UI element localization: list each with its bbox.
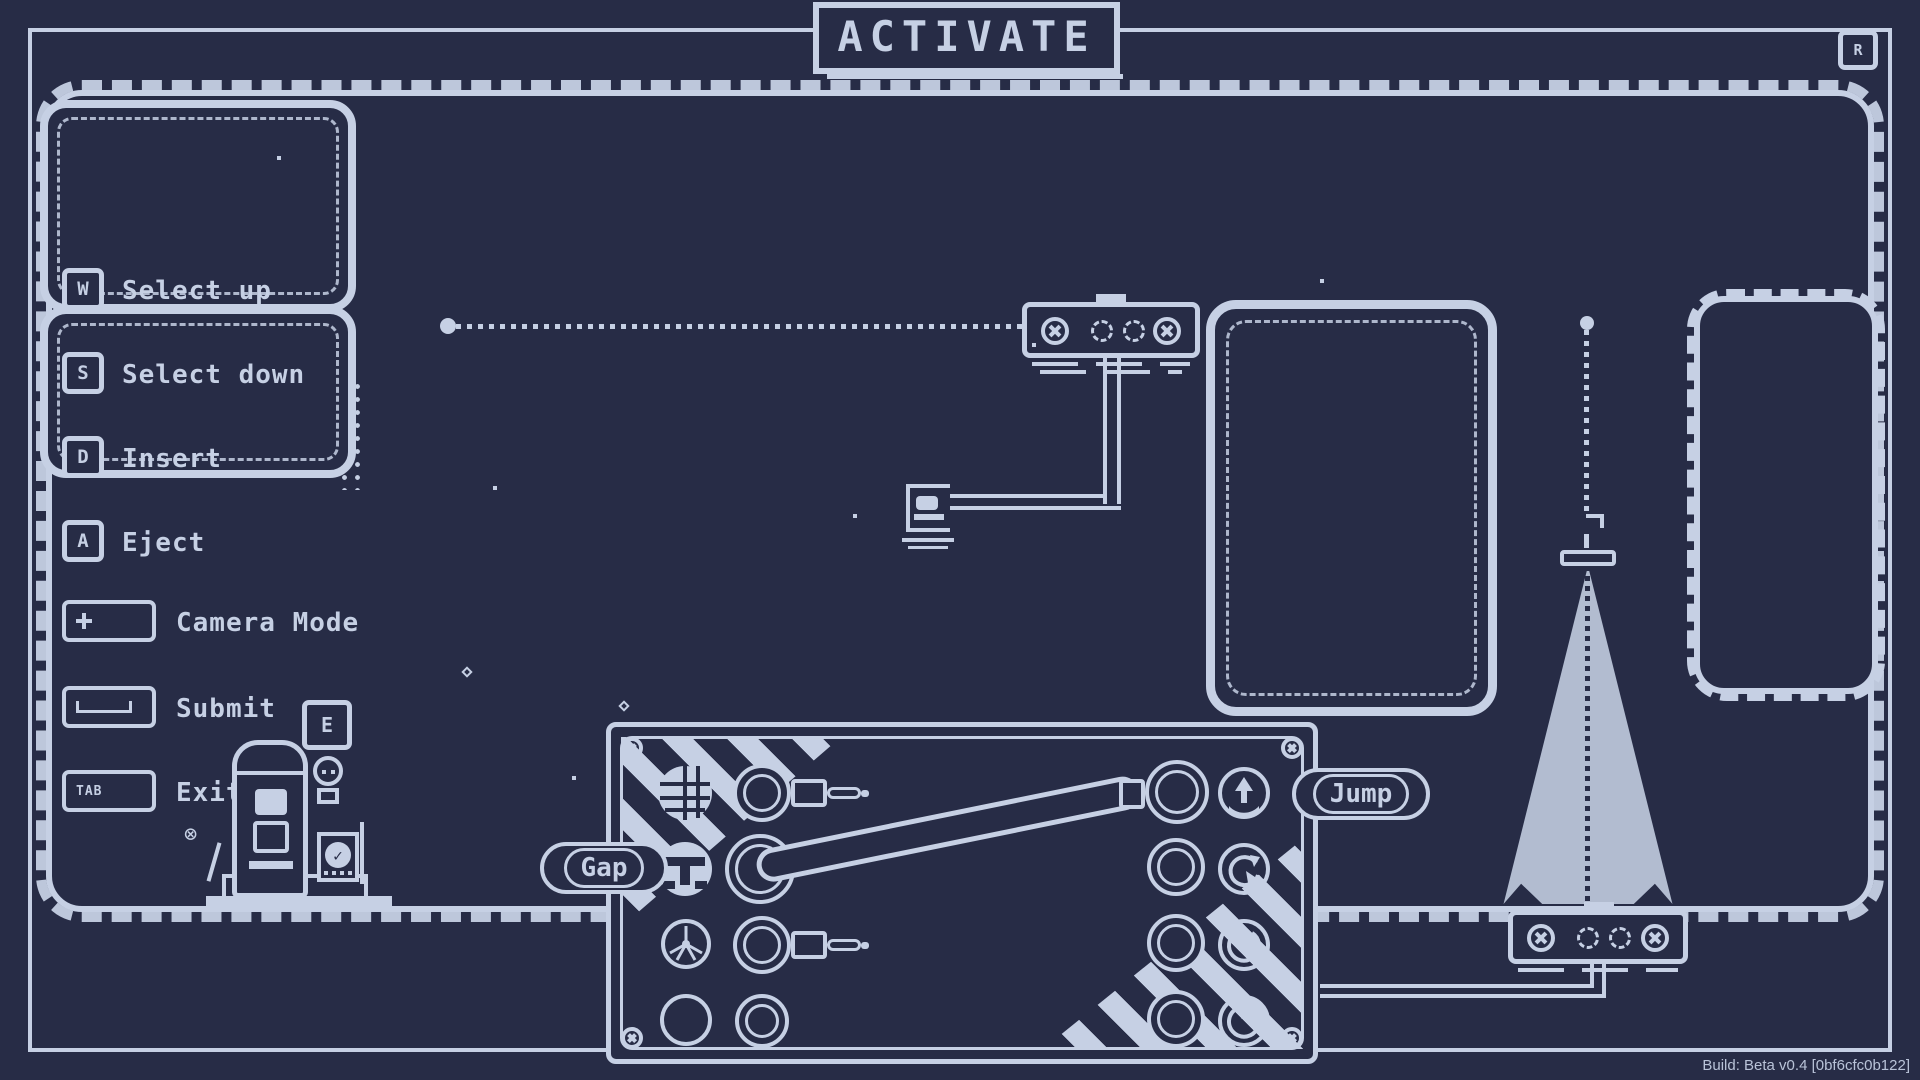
legend-label-select-down: Select down — [122, 360, 305, 390]
module-pipe — [1320, 994, 1606, 998]
fan-swirl-icon — [1123, 320, 1145, 342]
empty-dial[interactable] — [660, 994, 712, 1046]
empty-socket[interactable] — [1147, 914, 1205, 972]
key-a: A — [62, 520, 104, 562]
speck — [1320, 279, 1324, 283]
module-body — [1508, 910, 1688, 964]
panel-screw-icon — [1281, 737, 1303, 759]
module-pipe — [1117, 358, 1121, 504]
fan-swirl-icon — [1577, 927, 1599, 949]
panel-screw-icon — [621, 737, 643, 759]
panel-screw-icon — [1281, 1027, 1303, 1049]
build-version: Build: Beta v0.4 [0bf6cfc0b122] — [1702, 1057, 1910, 1074]
gauge-box: ✓ — [317, 832, 359, 882]
screw-icon — [1641, 924, 1669, 952]
wall-pillar — [1694, 296, 1878, 694]
gap-tag[interactable]: Gap — [540, 842, 668, 894]
fan-swirl-icon — [1609, 927, 1631, 949]
lamp-head[interactable] — [1560, 550, 1616, 566]
screw-icon — [1153, 317, 1181, 345]
rotate-button[interactable] — [1217, 842, 1271, 896]
check-icon: ✓ — [325, 842, 351, 868]
cancel-icon: ⊗ — [184, 822, 197, 847]
key-space — [62, 686, 156, 728]
legend-label-insert: Insert — [122, 444, 222, 474]
beam-stem — [1584, 534, 1589, 548]
robot-head — [255, 789, 287, 815]
robot-body — [253, 821, 289, 853]
light-cone-center-line — [1585, 566, 1590, 904]
empty-socket[interactable] — [735, 994, 789, 1048]
gap-label: Gap — [564, 848, 645, 888]
power-button-1[interactable] — [1217, 918, 1271, 972]
legend-label-submit: Submit — [176, 694, 276, 724]
beam-dotted-cable — [1584, 330, 1589, 514]
module-hatch — [1518, 968, 1678, 972]
beam-anchor — [1580, 316, 1594, 330]
module-hatch — [1032, 362, 1190, 366]
jump-label: Jump — [1313, 774, 1410, 814]
speck — [853, 514, 857, 518]
wire-node — [440, 318, 456, 334]
gauge-antenna — [360, 822, 364, 884]
speck — [493, 486, 497, 490]
capsule-tank — [232, 740, 308, 898]
speck — [572, 776, 576, 780]
module-pipe — [1320, 984, 1594, 988]
speck — [1032, 343, 1036, 347]
page-title: ACTIVATE — [837, 12, 1095, 61]
key-tab: TAB — [62, 770, 156, 812]
key-s: S — [62, 352, 104, 394]
robot-base — [249, 861, 293, 869]
dotted-wire — [456, 324, 1022, 329]
key-r: R — [1838, 30, 1878, 70]
beam-hook — [1586, 514, 1604, 528]
module-pipe — [1602, 964, 1606, 996]
module-pipe — [940, 506, 1121, 510]
buddy-robot-body — [317, 788, 339, 804]
control-panel — [606, 722, 1318, 1064]
socket-shadow — [908, 546, 948, 549]
module-body — [1022, 302, 1200, 358]
game-screen: W Select up S Select down D Insert A Eje… — [0, 0, 1920, 1080]
key-d: D — [62, 436, 104, 478]
fan-swirl-icon — [1091, 320, 1113, 342]
legend-label-eject: Eject — [122, 528, 205, 558]
speck — [277, 156, 281, 160]
module-pipe — [940, 494, 1107, 498]
globe-dial[interactable] — [656, 764, 714, 822]
title-box: ACTIVATE — [813, 2, 1120, 74]
jump-tag[interactable]: Jump — [1292, 768, 1430, 820]
wall-socket — [906, 484, 950, 532]
empty-socket[interactable] — [1147, 838, 1205, 896]
module-pipe — [1103, 358, 1107, 504]
key-w: W — [62, 268, 104, 310]
module-hatch — [1040, 370, 1182, 374]
power-button-2[interactable] — [1217, 994, 1271, 1048]
module-slot-main[interactable] — [1206, 300, 1497, 716]
key-e-hint: E — [302, 700, 352, 750]
legend-label-camera-mode: Camera Mode — [176, 608, 359, 638]
key-camera — [62, 600, 156, 642]
panel-screw-icon — [621, 1027, 643, 1049]
screw-icon — [1041, 317, 1069, 345]
buddy-robot-head — [313, 756, 343, 786]
spacebar-icon — [76, 701, 132, 713]
screw-icon — [1527, 924, 1555, 952]
fan-dial[interactable] — [660, 918, 712, 970]
empty-socket[interactable] — [1147, 990, 1205, 1048]
socket-shadow — [902, 538, 954, 542]
legend-label-select-up: Select up — [122, 276, 272, 306]
pipe-connected-socket[interactable] — [1145, 760, 1209, 824]
title-shadow — [827, 74, 1123, 79]
eject-up-button[interactable] — [1217, 766, 1271, 820]
pipe-plug — [1119, 779, 1145, 809]
plus-icon — [76, 613, 92, 629]
